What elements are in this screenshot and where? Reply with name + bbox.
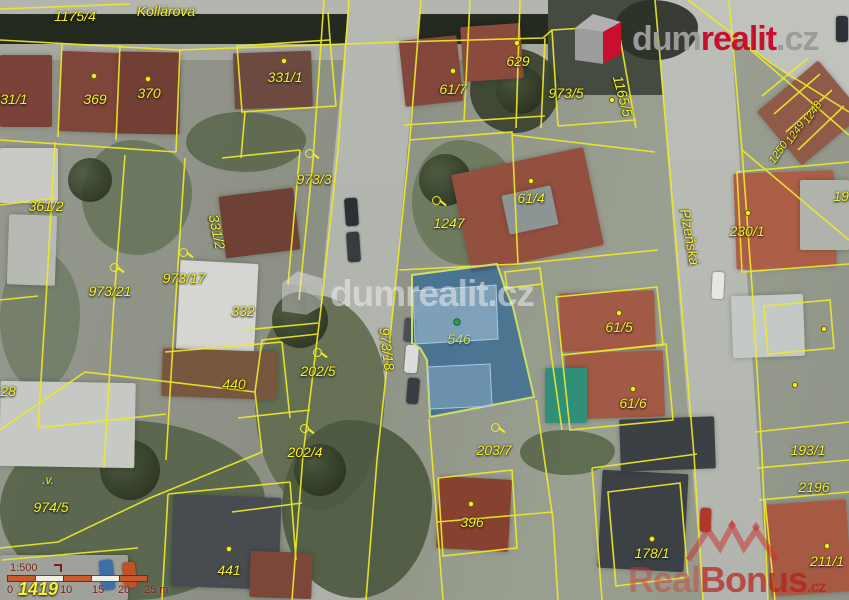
parcel-label: 1175/4 bbox=[54, 9, 96, 23]
garden-symbol-icon bbox=[305, 149, 314, 158]
parcel-label: 202/4 bbox=[287, 445, 322, 459]
parcel-label: 369 bbox=[83, 92, 106, 106]
realbonus-crown-icon bbox=[686, 520, 778, 562]
watermark-realbonus: RealBonus.cz bbox=[628, 520, 838, 598]
logo-text: dumrealit.cz bbox=[632, 22, 818, 56]
scale-bracket bbox=[54, 564, 62, 572]
parcel-label: 973/21 bbox=[89, 284, 132, 298]
parcel-label: 1247 bbox=[433, 216, 464, 230]
parcel-label: 396 bbox=[460, 515, 483, 529]
parcel-label: 61/7 bbox=[439, 82, 466, 96]
scale-tick: 15 bbox=[92, 585, 104, 596]
parcel-label: 974/5 bbox=[33, 500, 68, 514]
watermark-dumrealit: dumrealit.cz bbox=[282, 264, 534, 322]
garden-symbol-icon bbox=[179, 248, 188, 257]
scale-ratio: 1:500 bbox=[10, 563, 38, 574]
highlighted-parcel-label: 546 bbox=[447, 332, 470, 346]
marsh-symbol-icon: .v. bbox=[42, 474, 54, 486]
dumrealit-building-icon bbox=[574, 10, 622, 68]
parcel-label: 202/5 bbox=[300, 364, 335, 378]
parcel-label: 361/2 bbox=[28, 199, 63, 213]
parcel-label: 629 bbox=[506, 54, 529, 68]
parcel-label: 331/1 bbox=[0, 92, 28, 106]
parcel-label: 332 bbox=[231, 304, 254, 318]
parcel-label: 28 bbox=[0, 384, 16, 398]
parcel-label: 973/5 bbox=[548, 86, 583, 100]
scale-tick: 25 m bbox=[144, 585, 168, 596]
parcel-label: 199 bbox=[833, 189, 849, 203]
cadastral-map-canvas: .v. 1175/4 Kollárova 369 370 331/1 331/1… bbox=[0, 0, 849, 600]
garden-symbol-icon bbox=[110, 263, 119, 272]
garden-symbol-icon bbox=[432, 196, 441, 205]
watermark-text: dumrealit.cz bbox=[330, 275, 534, 312]
parcel-label: 230/1 bbox=[729, 224, 764, 238]
map-scale-bar: 1:500 0 10 15 20 25 m bbox=[6, 562, 181, 600]
garden-symbol-icon bbox=[313, 348, 322, 357]
parcel-label: 61/4 bbox=[517, 191, 544, 205]
parcel-label: 440 bbox=[222, 377, 245, 391]
parcel-label: 61/6 bbox=[619, 396, 646, 410]
parcel-label: 61/5 bbox=[605, 320, 632, 334]
parcel-label: 193/1 bbox=[790, 443, 825, 457]
garden-symbol-icon bbox=[491, 423, 500, 432]
garden-symbol-icon bbox=[300, 424, 309, 433]
scale-tick: 20 bbox=[118, 585, 130, 596]
dumrealit-logo: dumrealit.cz bbox=[574, 10, 818, 68]
parcel-label: 973/3 bbox=[296, 172, 331, 186]
parcel-label: 331/1 bbox=[267, 70, 302, 84]
parcel-label: 973/17 bbox=[163, 271, 206, 285]
scale-tick: 10 bbox=[60, 585, 72, 596]
street-label: Kollárova bbox=[137, 4, 195, 18]
parcel-label: 2196 bbox=[798, 480, 829, 494]
parcel-label: 370 bbox=[137, 86, 160, 100]
dumrealit-building-icon bbox=[282, 264, 322, 322]
parcel-label: 441 bbox=[217, 563, 240, 577]
parcel-label: 203/7 bbox=[476, 443, 511, 457]
scale-tick: 0 bbox=[7, 585, 13, 596]
scale-segments bbox=[8, 575, 148, 582]
watermark-text: RealBonus.cz bbox=[628, 559, 825, 600]
